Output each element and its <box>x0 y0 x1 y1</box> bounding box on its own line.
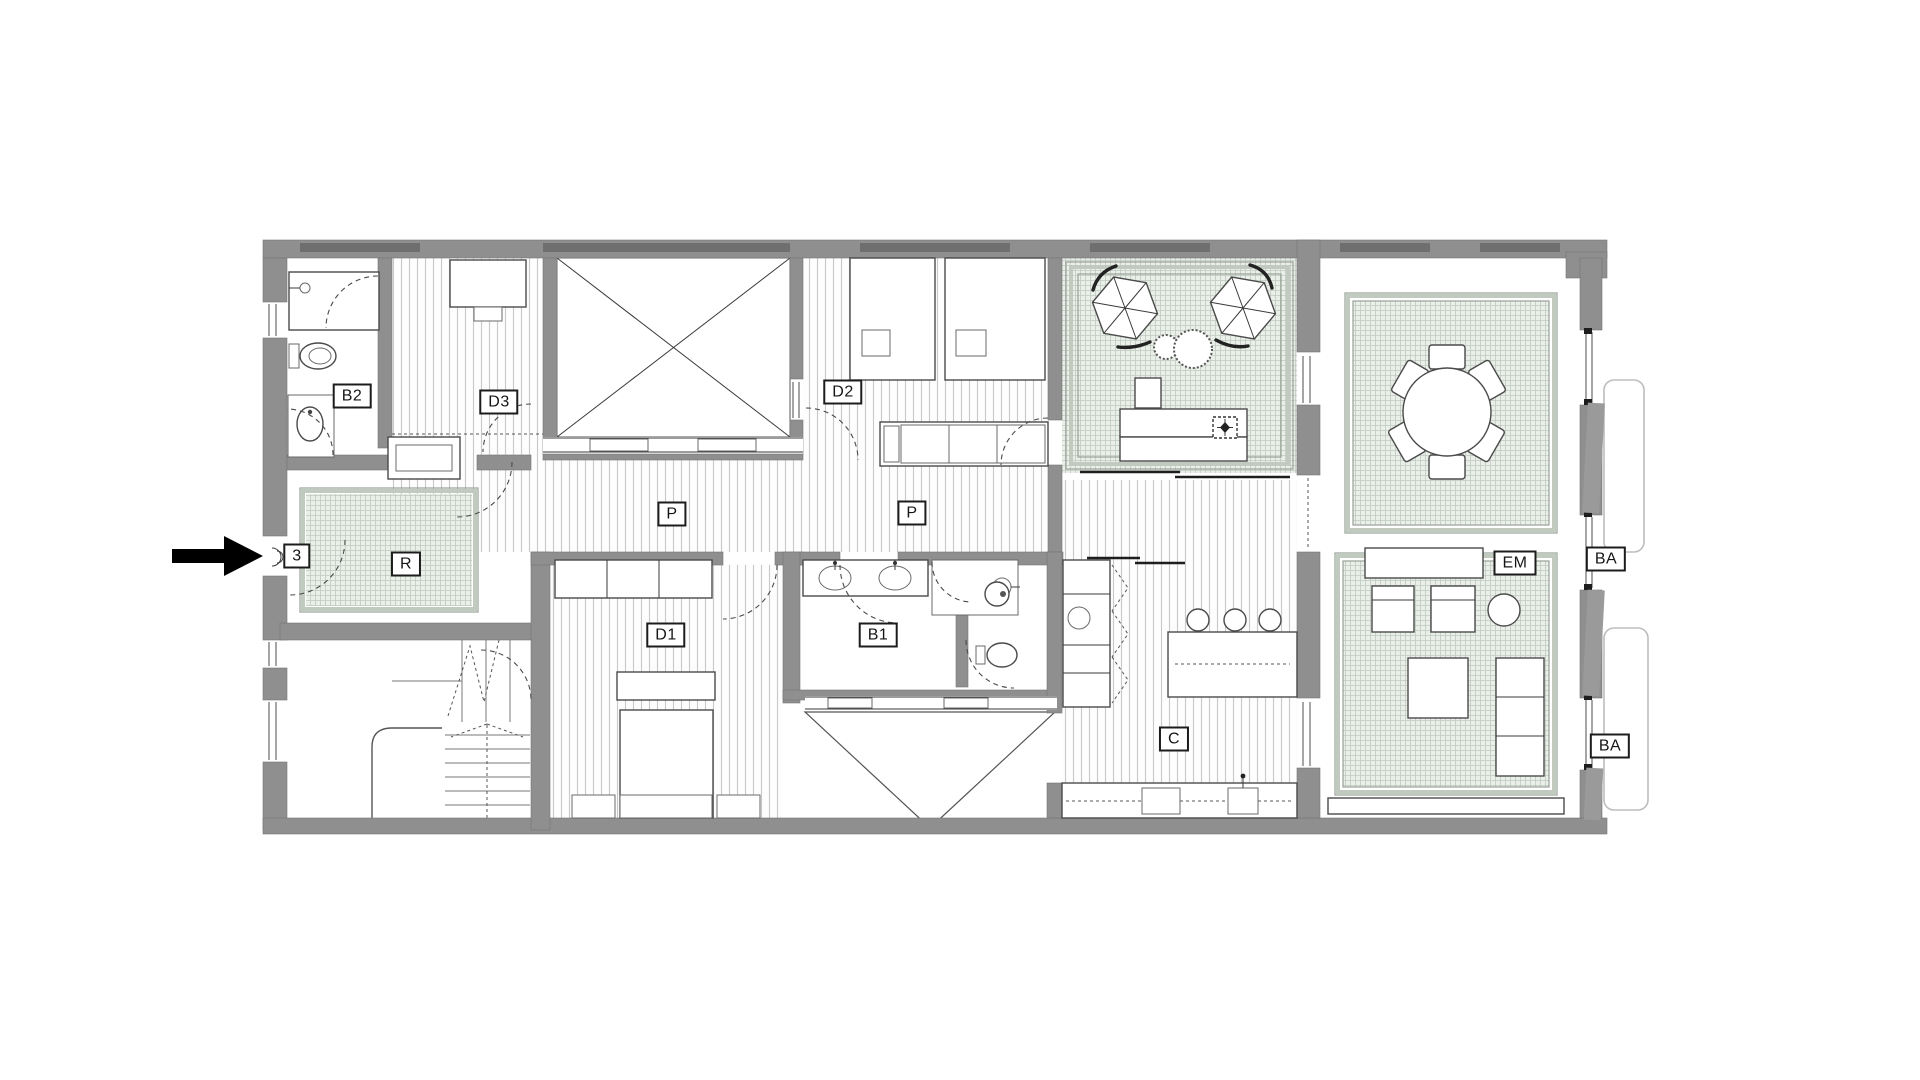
v-void-window-band <box>805 696 1057 710</box>
pillow <box>474 307 502 321</box>
room-label-em: EM <box>1494 551 1537 576</box>
side-table-icon <box>1174 330 1212 368</box>
bed-bench <box>617 672 715 700</box>
bathroom-b1-fixtures <box>803 560 1020 667</box>
pillow <box>572 795 615 818</box>
room-label-r: R <box>391 552 421 577</box>
sink-icon <box>1068 607 1090 629</box>
toilet-icon <box>987 643 1017 667</box>
terrace-chair <box>1135 378 1161 408</box>
lightwell-window-band <box>543 437 803 460</box>
staircase <box>372 640 530 830</box>
armchair <box>1372 586 1414 632</box>
floor-plan-drawing <box>0 0 1920 1080</box>
counter-sink <box>1142 788 1180 814</box>
pillow <box>717 795 760 818</box>
room-label-d2: D2 <box>823 380 862 405</box>
room-label-p-right: P <box>897 501 926 526</box>
cooktop <box>1228 788 1258 814</box>
pillow <box>862 330 890 356</box>
bed <box>850 258 935 380</box>
room-label-c: C <box>1159 727 1189 752</box>
floor-plan-page: B2 D3 D2 P P 3 R D1 B1 C EM BA BA <box>0 0 1920 1080</box>
round-dining-table <box>1403 368 1491 456</box>
coffee-table <box>1408 658 1468 718</box>
side-table-icon <box>1488 594 1520 626</box>
stool-icon <box>1224 609 1246 631</box>
stool-icon <box>1259 609 1281 631</box>
bedroom-d2-furniture <box>850 258 1048 466</box>
toilet-tank <box>976 646 985 664</box>
tv-bench <box>1328 798 1564 814</box>
room-label-d1: D1 <box>646 623 685 648</box>
pillow <box>620 795 712 818</box>
pillow <box>956 330 986 356</box>
entry-arrow-icon <box>172 536 263 576</box>
room-label-b2: B2 <box>333 384 372 409</box>
sofa <box>1365 548 1483 578</box>
sofa <box>555 560 712 598</box>
shower-head-icon <box>300 283 310 293</box>
bed <box>945 258 1045 380</box>
lightwell-x-void <box>557 258 790 437</box>
entry-marker <box>172 536 283 576</box>
media-unit <box>1496 658 1544 776</box>
room-label-d3: D3 <box>479 390 518 415</box>
toilet-tank <box>289 344 299 368</box>
armchair <box>1431 586 1475 632</box>
room-label-ba-lower: BA <box>1590 734 1630 759</box>
v-void-triangle <box>805 712 1055 828</box>
room-label-p-left: P <box>657 502 686 527</box>
shutter-leaf <box>1584 768 1604 821</box>
dining-furniture <box>1388 345 1507 479</box>
room-label-ba-upper: BA <box>1586 547 1626 572</box>
hall-rug <box>300 488 478 612</box>
bed <box>450 260 526 307</box>
stool-icon <box>1187 609 1209 631</box>
room-label-b1: B1 <box>859 623 898 648</box>
entry-number-label: 3 <box>283 544 310 569</box>
tall-cabinet-column <box>1063 560 1110 707</box>
bathroom-b2-fixtures <box>288 272 379 457</box>
